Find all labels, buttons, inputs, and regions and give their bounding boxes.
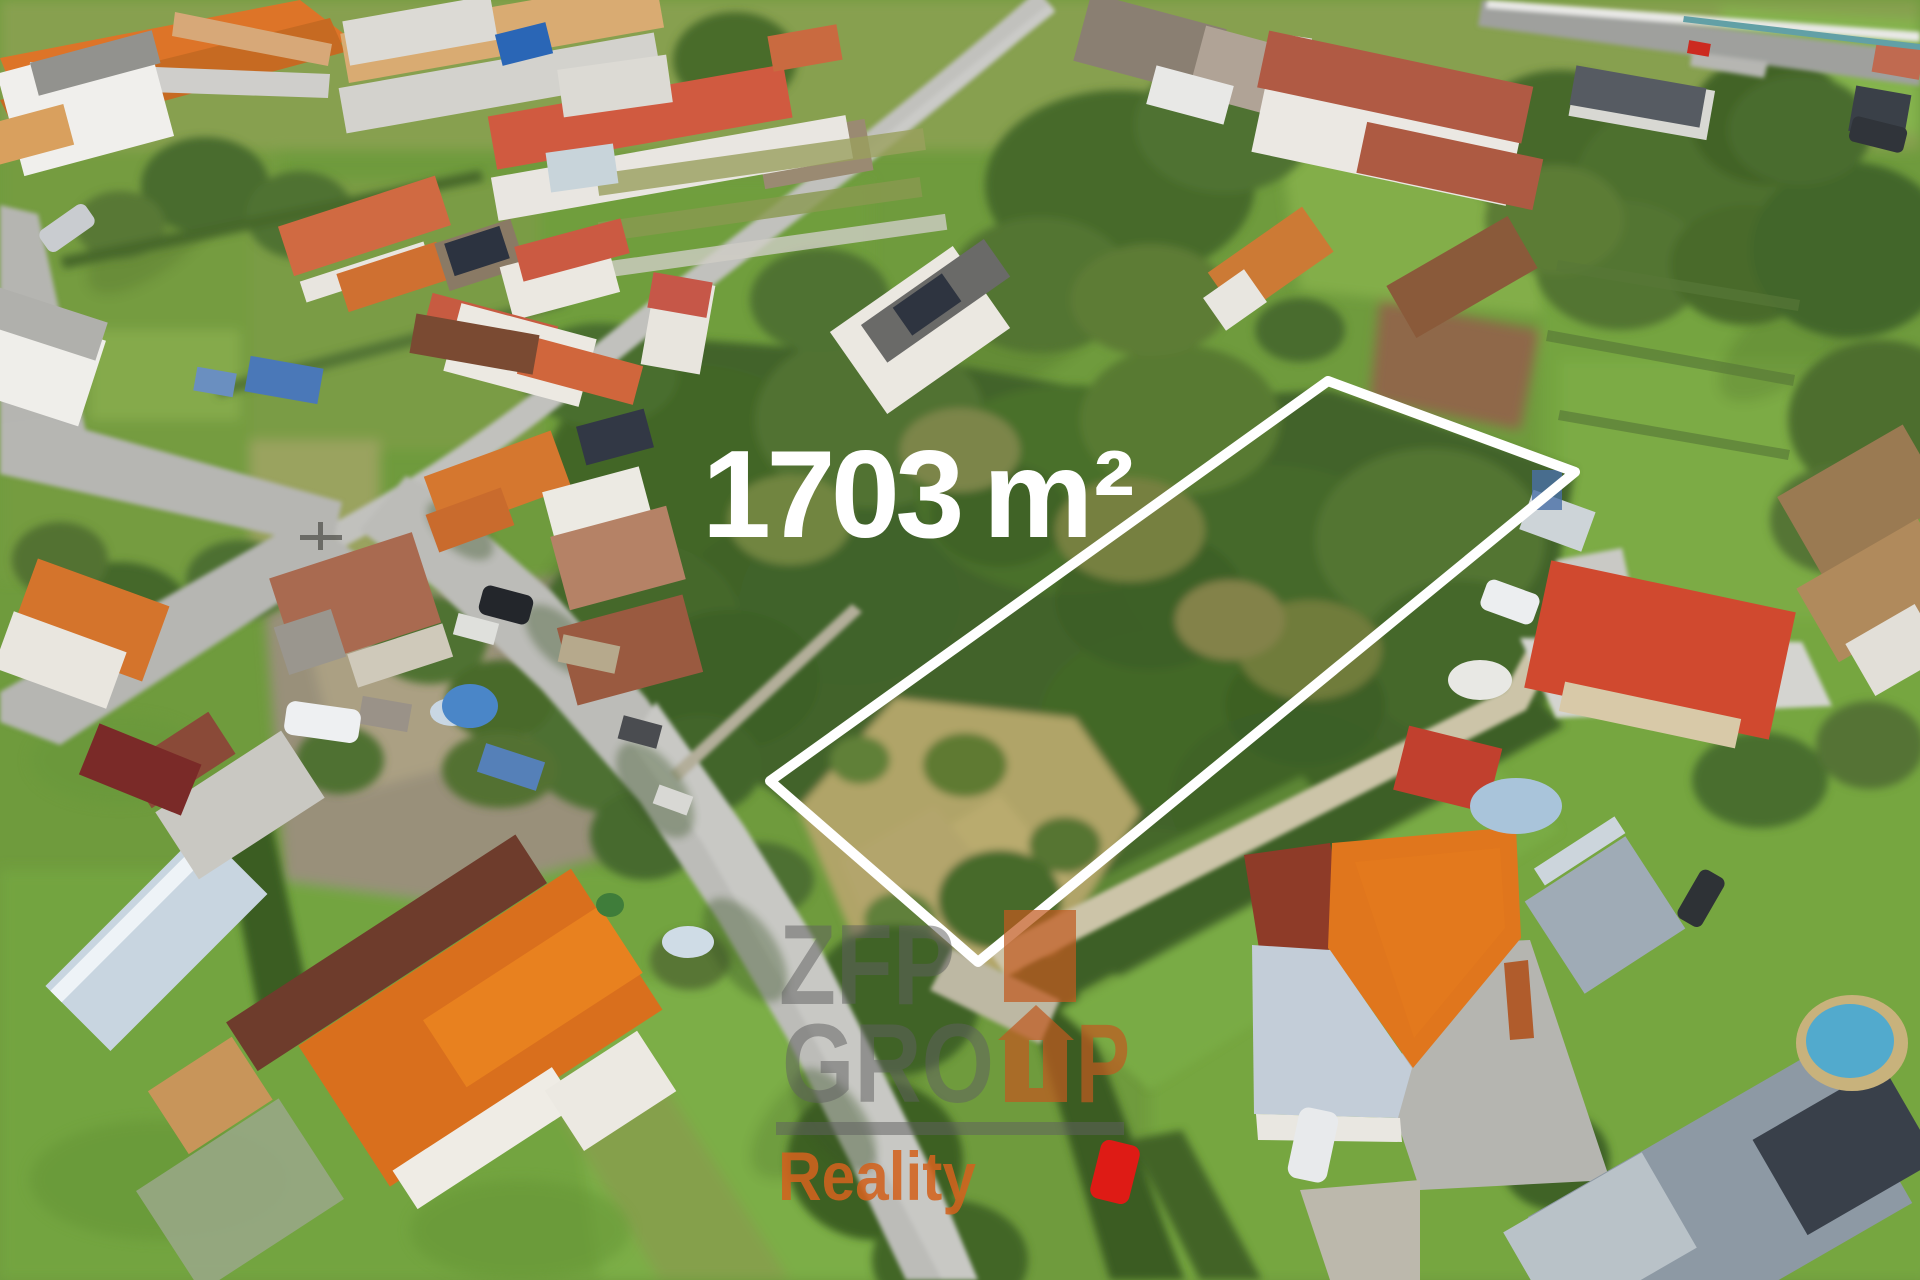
svg-text:m²: m²: [983, 426, 1135, 564]
svg-text:Reality: Reality: [778, 1138, 976, 1215]
svg-text:P: P: [1076, 1001, 1130, 1126]
svg-text:1703: 1703: [702, 426, 960, 564]
svg-text:GRO: GRO: [782, 1001, 994, 1126]
